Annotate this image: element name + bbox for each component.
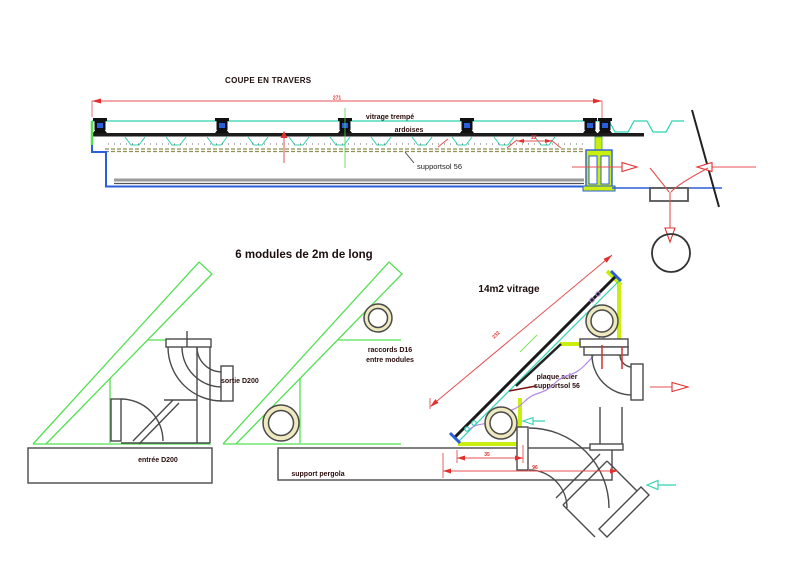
label-plaque-2: supportsol 56 [534, 383, 580, 390]
diagonal-cut-line [692, 110, 719, 207]
module-base [28, 448, 212, 483]
rail-bar [92, 133, 644, 137]
vitrage-circle-lower [485, 407, 517, 439]
dim-35-label: 35 [484, 452, 490, 458]
circle-flange [517, 427, 528, 470]
drain-box [650, 188, 688, 201]
pipe-elbow-entree [111, 399, 210, 444]
support-tray [92, 121, 585, 187]
label-plaque-1: plaque acier [537, 374, 578, 381]
technical-drawing-page: COUPE EN TRAVERS 271 [0, 0, 794, 561]
technical-drawing-canvas: COUPE EN TRAVERS 271 [0, 0, 794, 561]
label-sortie: sortie D200 [221, 378, 259, 385]
dimension-22: 22 [438, 135, 561, 148]
ibeam-post [583, 137, 615, 191]
dim-hypotenuse-label: 232 [491, 330, 501, 340]
raccord-circle-lower [263, 405, 299, 441]
dim-271-label: 271 [333, 96, 342, 102]
dim-22-label: 22 [531, 135, 537, 141]
glass-panel [450, 271, 621, 443]
clamp-fixtures [93, 118, 612, 133]
label-support-pergola: support pergola [291, 471, 344, 478]
module-green-outline-1 [33, 262, 212, 444]
dimension-271: 271 [92, 96, 602, 122]
coil-line [465, 292, 605, 434]
vitrage-drawing: 14m2 vitrage 232 plaque acier supportsol… [430, 255, 688, 537]
vitrage-flow-arrow [650, 383, 688, 392]
section-coupe-en-travers: COUPE EN TRAVERS 271 [92, 76, 756, 272]
label-vitrage-trempe: vitrage trempé [366, 114, 414, 121]
pipe-cluster [517, 339, 649, 537]
vitrage-title: 14m2 vitrage [478, 284, 540, 295]
coupe-title: COUPE EN TRAVERS [225, 76, 312, 85]
outlet-flange-diagonal [599, 487, 649, 537]
dim-96-label: 96 [532, 465, 538, 471]
label-ardoises: ardoises [395, 127, 424, 134]
pipe-elbow-sortie [166, 331, 233, 443]
support-brackets [125, 137, 555, 145]
label-raccords-1: raccords D16 [368, 347, 412, 354]
outlet-flange-right [631, 364, 643, 400]
dim-hypotenuse: 232 [430, 255, 612, 409]
raccord-circle-upper [364, 304, 392, 332]
label-supportsol: supportsol 56 [417, 162, 462, 171]
label-raccords-2: entre modules [366, 357, 414, 364]
roof-corrugation [600, 121, 684, 132]
modules-title: 6 modules de 2m de long [235, 249, 372, 261]
supportsol-leader [405, 152, 414, 163]
vitrage-circle-upper [586, 305, 618, 337]
label-entree: entrée D200 [138, 457, 178, 464]
